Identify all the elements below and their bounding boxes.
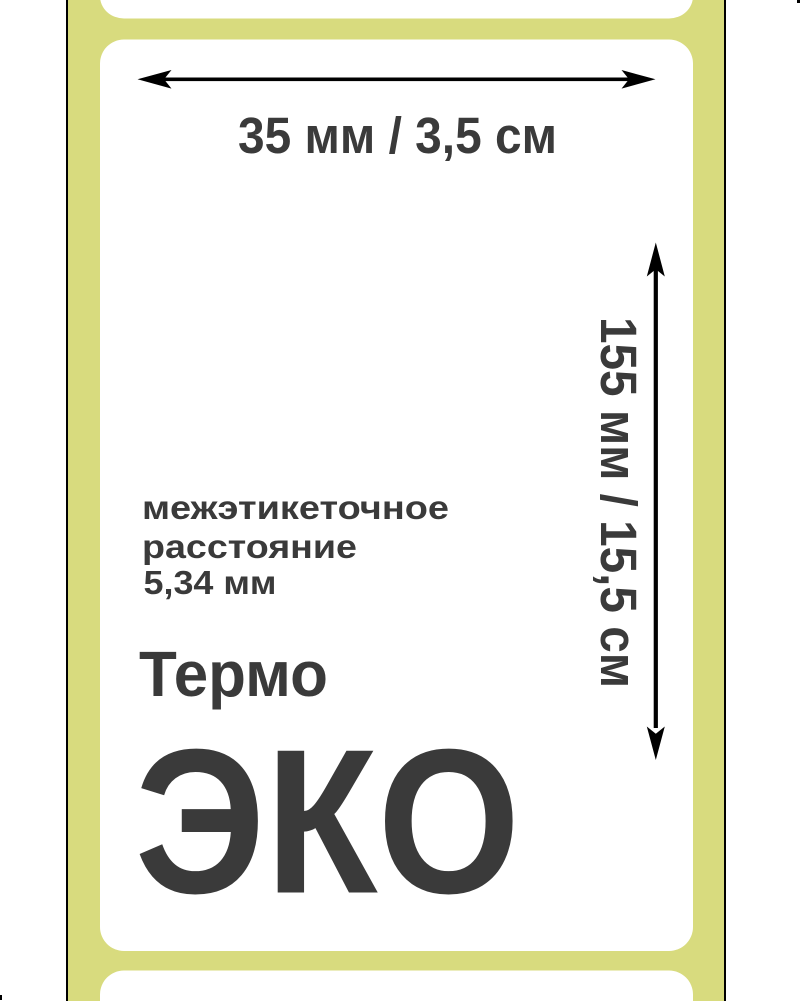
svg-text:5,34 мм: 5,34 мм: [144, 564, 277, 601]
svg-text:расстояние: расстояние: [142, 528, 357, 565]
svg-text:Термо: Термо: [139, 638, 328, 710]
svg-text:35 мм / 3,5 см: 35 мм / 3,5 см: [238, 107, 557, 164]
svg-text:ЭКО: ЭКО: [135, 707, 521, 937]
svg-text:155 мм / 15,5 см: 155 мм / 15,5 см: [590, 317, 647, 688]
svg-text:межэтикеточное: межэтикеточное: [142, 489, 449, 526]
